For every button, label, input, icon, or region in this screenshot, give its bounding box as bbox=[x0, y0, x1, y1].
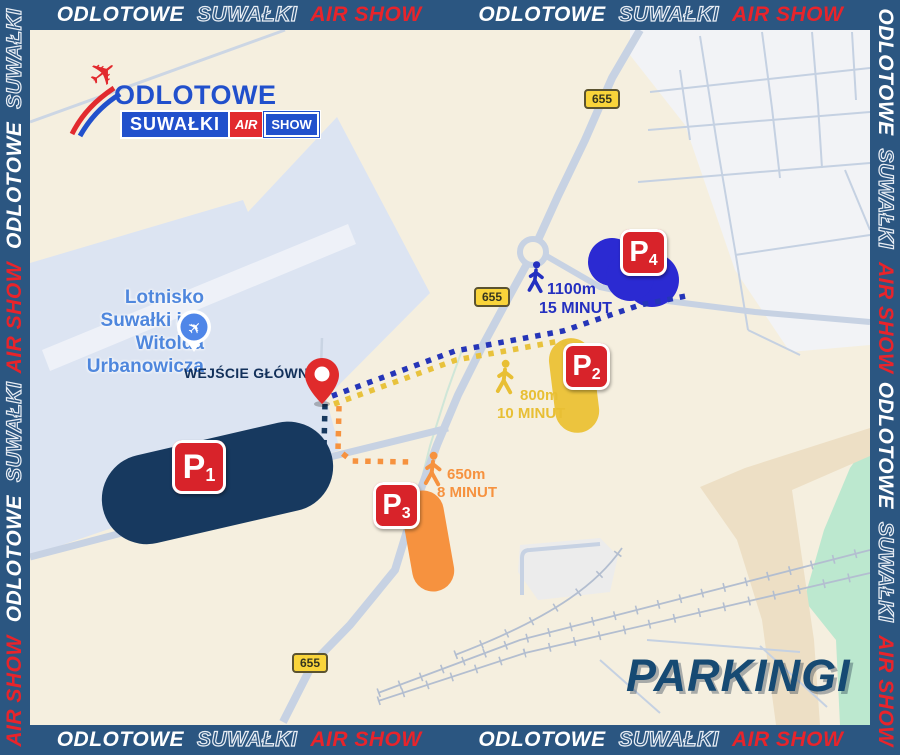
logo-subtitle-row: SUWAŁKI AIR SHOW bbox=[120, 110, 321, 139]
frame-word: ODLOTOWE bbox=[3, 122, 27, 249]
parking-badge-p2: P2 bbox=[563, 343, 610, 390]
frame-word: SUWAŁKI bbox=[3, 8, 27, 108]
frame-word: SUWAŁKI bbox=[873, 149, 897, 249]
frame-word: SUWAŁKI bbox=[619, 3, 719, 27]
parking-badge-p4: P4 bbox=[620, 229, 667, 276]
event-logo: ✈ ODLOTOWE SUWAŁKI AIR SHOW bbox=[70, 60, 285, 140]
logo-city: SUWAŁKI bbox=[122, 112, 228, 137]
frame-word: AIR SHOW bbox=[732, 3, 843, 27]
frame-word: SUWAŁKI bbox=[197, 3, 297, 27]
frame-word: ODLOTOWE bbox=[873, 8, 897, 135]
distance-label-p4: 1100m 15 MINUT bbox=[547, 282, 612, 317]
frame-word: AIR SHOW bbox=[873, 635, 897, 746]
frame-text-group: ODLOTOWE SUWAŁKI AIR SHOW bbox=[57, 3, 422, 27]
walker-icon-p4 bbox=[524, 258, 548, 298]
walker-icon-p2 bbox=[492, 356, 518, 400]
frame-bottom: ODLOTOWE SUWAŁKI AIR SHOW ODLOTOWE SUWAŁ… bbox=[0, 725, 900, 755]
frame-right: ODLOTOWE SUWAŁKI AIR SHOW ODLOTOWE SUWAŁ… bbox=[870, 0, 900, 755]
parking-badge-p1: P1 bbox=[172, 440, 226, 494]
frame-word: AIR SHOW bbox=[310, 3, 421, 27]
frame-text-group: ODLOTOWE SUWAŁKI AIR SHOW bbox=[478, 3, 843, 27]
frame-text-group: ODLOTOWE SUWAŁKI AIR SHOW bbox=[873, 382, 897, 747]
airport-pin: ✈ bbox=[174, 308, 214, 354]
logo-air: AIR bbox=[230, 112, 262, 137]
road-shield-top: 655 bbox=[584, 89, 620, 109]
frame-word: AIR SHOW bbox=[310, 728, 421, 752]
parking-badge-p3: P3 bbox=[373, 482, 420, 529]
frame-word: SUWAŁKI bbox=[197, 728, 297, 752]
frame-word: ODLOTOWE bbox=[57, 3, 184, 27]
frame-text-group: ODLOTOWE SUWAŁKI AIR SHOW bbox=[57, 728, 422, 752]
frame-word: ODLOTOWE bbox=[57, 728, 184, 752]
page-title: PARKINGI bbox=[626, 650, 851, 702]
entrance-pin-icon bbox=[302, 356, 342, 408]
frame-text-group: ODLOTOWE SUWAŁKI AIR SHOW bbox=[873, 8, 897, 373]
distance-label-p3: 650m 8 MINUT bbox=[447, 467, 497, 500]
frame-word: AIR SHOW bbox=[732, 728, 843, 752]
frame-word: AIR SHOW bbox=[873, 262, 897, 373]
frame-word: ODLOTOWE bbox=[3, 495, 27, 622]
frame-left: AIR SHOW ODLOTOWE SUWAŁKI AIR SHOW ODLOT… bbox=[0, 0, 30, 755]
frame-word: AIR SHOW bbox=[3, 635, 27, 746]
frame-word: ODLOTOWE bbox=[478, 3, 605, 27]
entrance-label: WEJŚCIE GŁÓWNE bbox=[184, 365, 318, 381]
distance-label-p2: 800m 10 MINUT bbox=[520, 388, 565, 421]
logo-show: SHOW bbox=[264, 112, 318, 137]
road-shield-middle: 655 bbox=[474, 287, 510, 307]
frame-word: SUWAŁKI bbox=[3, 382, 27, 482]
frame-word: ODLOTOWE bbox=[478, 728, 605, 752]
frame-top: ODLOTOWE SUWAŁKI AIR SHOW ODLOTOWE SUWAŁ… bbox=[0, 0, 900, 30]
frame-word: ODLOTOWE bbox=[873, 382, 897, 509]
frame-text-group: AIR SHOW ODLOTOWE SUWAŁKI bbox=[3, 382, 27, 747]
road-shield-bottom: 655 bbox=[292, 653, 328, 673]
frame-word: SUWAŁKI bbox=[619, 728, 719, 752]
frame-text-group: AIR SHOW ODLOTOWE SUWAŁKI bbox=[3, 8, 27, 373]
frame-text-group: ODLOTOWE SUWAŁKI AIR SHOW bbox=[478, 728, 843, 752]
logo-title: ODLOTOWE bbox=[114, 80, 277, 111]
frame-word: AIR SHOW bbox=[3, 262, 27, 373]
frame-word: SUWAŁKI bbox=[873, 522, 897, 622]
